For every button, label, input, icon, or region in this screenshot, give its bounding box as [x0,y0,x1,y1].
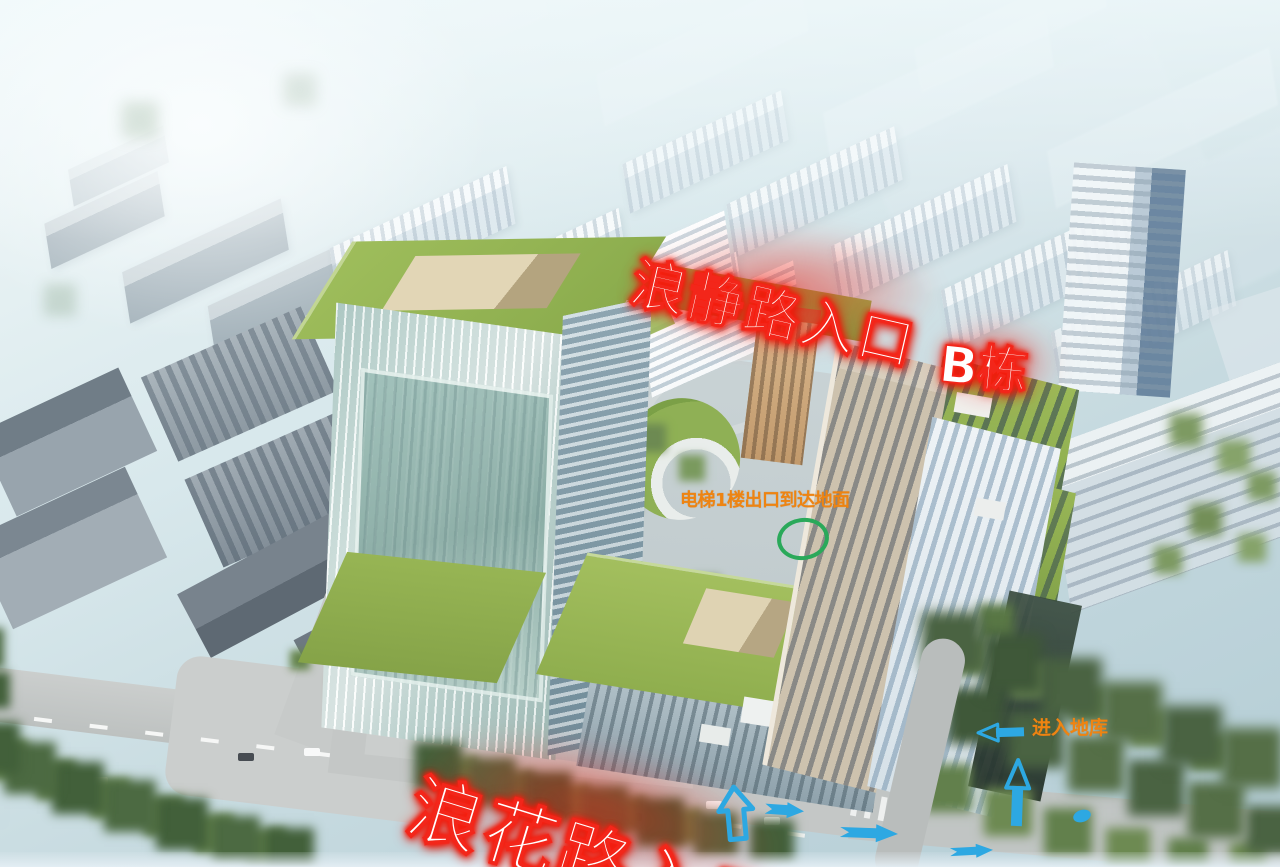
cars [0,0,16,8]
route-right-arrow-2-icon [840,823,901,843]
garage-entry-note: 进入地库 [1032,713,1108,740]
building-b-label: B栋 [936,324,1031,405]
building-right-slab [1048,361,1280,614]
main-entrance-up-arrow-icon [712,782,761,844]
building-right-tower [1058,162,1186,397]
garage-entry-left-arrow-icon [976,721,1027,744]
aerial-campus-map: 浪静路入口 B栋 电梯1楼出口到达地面 进入地库 浪花路入口 [0,0,1280,867]
elevator-exit-note: 电梯1楼出口到达地面 [680,486,850,512]
route-right-arrow-1-icon [764,801,805,820]
ramp-up-arrow-icon [1001,757,1033,828]
route-right-arrow-3-icon [950,843,995,859]
